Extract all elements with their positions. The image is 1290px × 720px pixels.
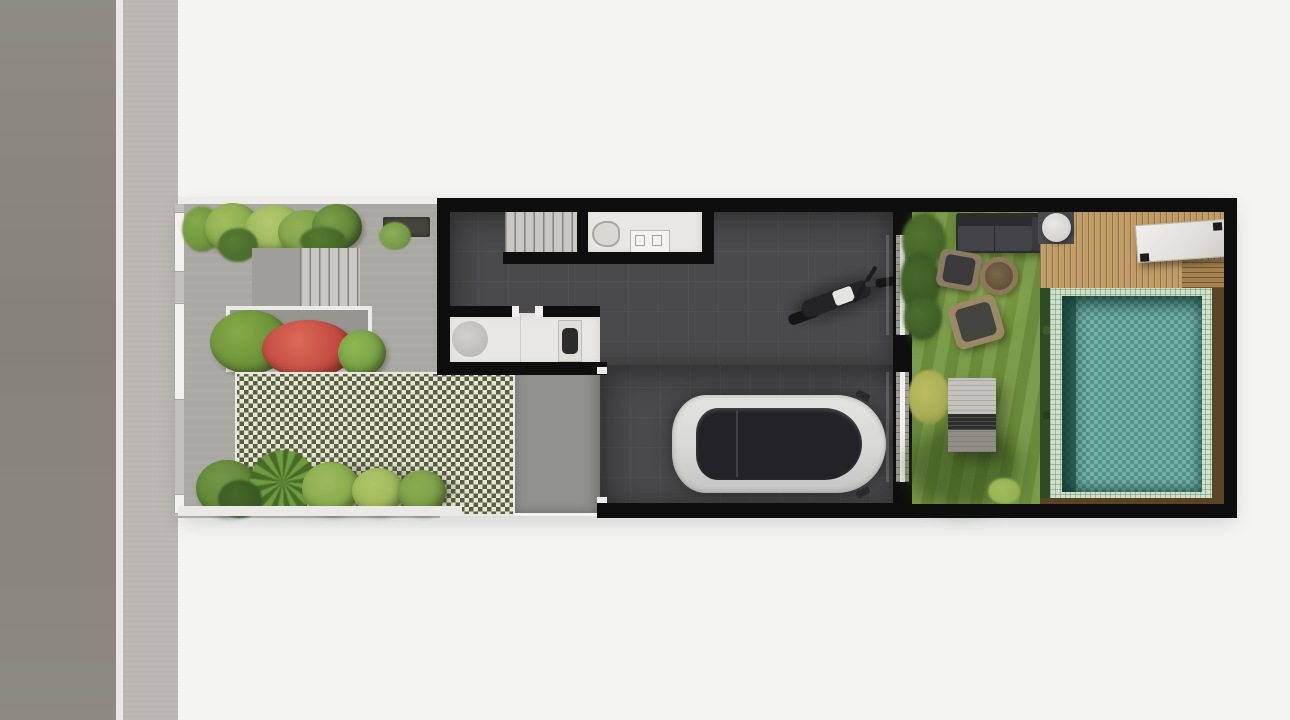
door-threshold [886, 372, 889, 482]
driveway-apron [515, 365, 605, 513]
house-left-wall [437, 198, 450, 375]
garage-bottom-wall [597, 503, 904, 518]
asphalt-road [0, 0, 116, 720]
kitchen-bottom-wall [437, 362, 607, 375]
cooktop-burners [562, 328, 578, 354]
sidewalk [123, 0, 178, 720]
counter-seam [520, 315, 521, 363]
bench-base [948, 430, 996, 452]
sofa-cushion-seam [994, 226, 995, 251]
outdoor-sofa [956, 213, 1046, 253]
planter-edge-strip [178, 506, 462, 516]
entry-steps [300, 248, 360, 315]
vanity-basin [635, 235, 645, 246]
lawn-plant [988, 478, 1020, 504]
bench-top [948, 378, 996, 416]
staircase [505, 210, 578, 254]
kitchen-top-wall [543, 306, 600, 317]
planter-green-bush [338, 330, 386, 376]
vanity-basin [652, 235, 662, 246]
backyard-right-wall [1224, 198, 1237, 518]
street-curb [116, 0, 123, 720]
yellow-bush [908, 370, 950, 424]
armchair [935, 248, 983, 293]
backyard-bottom-wall [893, 504, 1237, 518]
car-roof-glass [696, 408, 862, 480]
front-boundary-edge [178, 197, 440, 204]
kitchen-top-wall [448, 306, 512, 317]
fire-pit [980, 257, 1018, 295]
armchair-cushion [954, 301, 998, 344]
table-leg [1140, 253, 1150, 262]
house-front-top-wall [437, 198, 903, 212]
door-post [512, 306, 519, 317]
driveway-gate-panel [174, 303, 185, 400]
small-bush [379, 222, 411, 250]
tall-tree [904, 296, 942, 340]
car [672, 395, 886, 493]
round-side-stool [1042, 213, 1071, 242]
sofa-seat-cushions [958, 226, 1032, 251]
toilet [592, 221, 620, 247]
garden-bench [948, 378, 996, 452]
site-plan-render [0, 0, 1290, 720]
entry-landing [252, 248, 302, 315]
pool-shadow-edge [1062, 296, 1076, 492]
car-roof-seam [736, 411, 738, 477]
pool-water [1062, 296, 1202, 492]
bathroom-bottom-wall [584, 252, 714, 264]
stair-wall [503, 252, 587, 264]
marble-dining-table [1135, 219, 1227, 263]
backyard-top-wall [893, 198, 1237, 212]
armchair-cushion [942, 254, 976, 287]
kitchen-round-sink [452, 321, 488, 357]
table-leg [1213, 222, 1223, 231]
garage-door-post [597, 367, 607, 374]
bench-slats [948, 414, 996, 430]
door-threshold [886, 235, 889, 335]
door-post [535, 306, 543, 317]
